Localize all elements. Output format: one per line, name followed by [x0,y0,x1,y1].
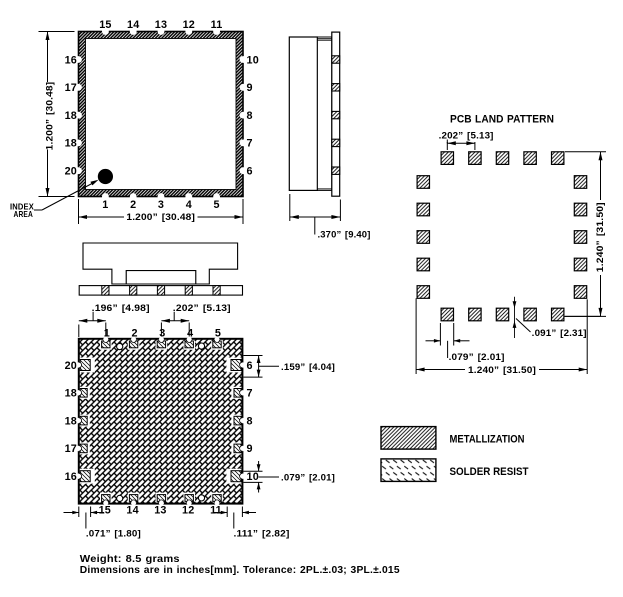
svg-text:5: 5 [215,328,221,340]
svg-text:18: 18 [65,415,77,427]
svg-text:1.240” [31.50]: 1.240” [31.50] [595,202,605,272]
svg-text:10: 10 [247,54,259,66]
svg-text:18: 18 [65,110,77,122]
svg-text:8: 8 [247,415,253,427]
svg-text:15: 15 [99,505,111,517]
svg-text:6: 6 [247,166,253,178]
svg-text:9: 9 [247,443,253,455]
svg-text:.079” [2.01]: .079” [2.01] [449,352,505,362]
svg-text:17: 17 [65,443,77,455]
svg-text:7: 7 [247,388,253,400]
svg-text:Weight: 8.5 grams: Weight: 8.5 grams [80,554,180,565]
svg-text:13: 13 [155,19,167,31]
svg-text:12: 12 [183,19,195,31]
svg-text:.202” [5.13]: .202” [5.13] [173,303,231,313]
svg-text:1.240” [31.50]: 1.240” [31.50] [468,365,536,375]
svg-text:1.200” [30.48]: 1.200” [30.48] [45,82,55,151]
svg-text:3: 3 [158,199,164,211]
svg-text:13: 13 [154,505,166,517]
svg-text:20: 20 [65,360,77,372]
svg-text:.196” [4.98]: .196” [4.98] [92,303,150,313]
svg-text:1.200” [30.48]: 1.200” [30.48] [126,212,195,222]
svg-text:15: 15 [99,19,111,31]
svg-text:.079” [2.01]: .079” [2.01] [281,473,335,483]
svg-text:17: 17 [65,82,77,94]
svg-text:12: 12 [182,505,194,517]
svg-text:AREA: AREA [14,209,34,219]
svg-text:1: 1 [102,199,108,211]
svg-text:3: 3 [159,328,165,340]
svg-text:9: 9 [247,82,253,94]
svg-text:14: 14 [127,19,139,31]
svg-text:8: 8 [247,110,253,122]
svg-text:6: 6 [247,360,253,372]
svg-text:7: 7 [247,138,253,150]
svg-text:20: 20 [65,166,77,178]
svg-text:4: 4 [187,328,193,340]
svg-text:4: 4 [186,199,192,211]
svg-text:SOLDER RESIST: SOLDER RESIST [450,466,529,478]
svg-text:2: 2 [131,328,137,340]
svg-text:.091” [2.31]: .091” [2.31] [532,328,587,338]
svg-text:.071” [1.80]: .071” [1.80] [86,529,141,539]
svg-text:.111” [2.82]: .111” [2.82] [234,529,290,539]
svg-text:2: 2 [130,199,136,211]
svg-text:5: 5 [213,199,219,211]
svg-text:14: 14 [126,505,138,517]
svg-text:10: 10 [247,471,259,483]
svg-text:18: 18 [65,138,77,150]
svg-text:.202” [5.13]: .202” [5.13] [439,130,494,140]
svg-text:.159” [4.04]: .159” [4.04] [281,362,335,372]
svg-text:1: 1 [104,328,110,340]
svg-text:11: 11 [211,19,223,31]
svg-text:18: 18 [65,388,77,400]
svg-text:Dimensions are in inches[mm: Dimensions are in inches[mm]. Tolerance:… [80,565,400,576]
svg-text:METALLIZATION: METALLIZATION [450,433,525,445]
svg-text:PCB LAND PATTERN: PCB LAND PATTERN [450,114,554,126]
svg-text:16: 16 [65,54,77,66]
svg-text:11: 11 [210,505,222,517]
svg-text:.370” [9.40]: .370” [9.40] [318,230,371,240]
svg-text:16: 16 [65,471,77,483]
